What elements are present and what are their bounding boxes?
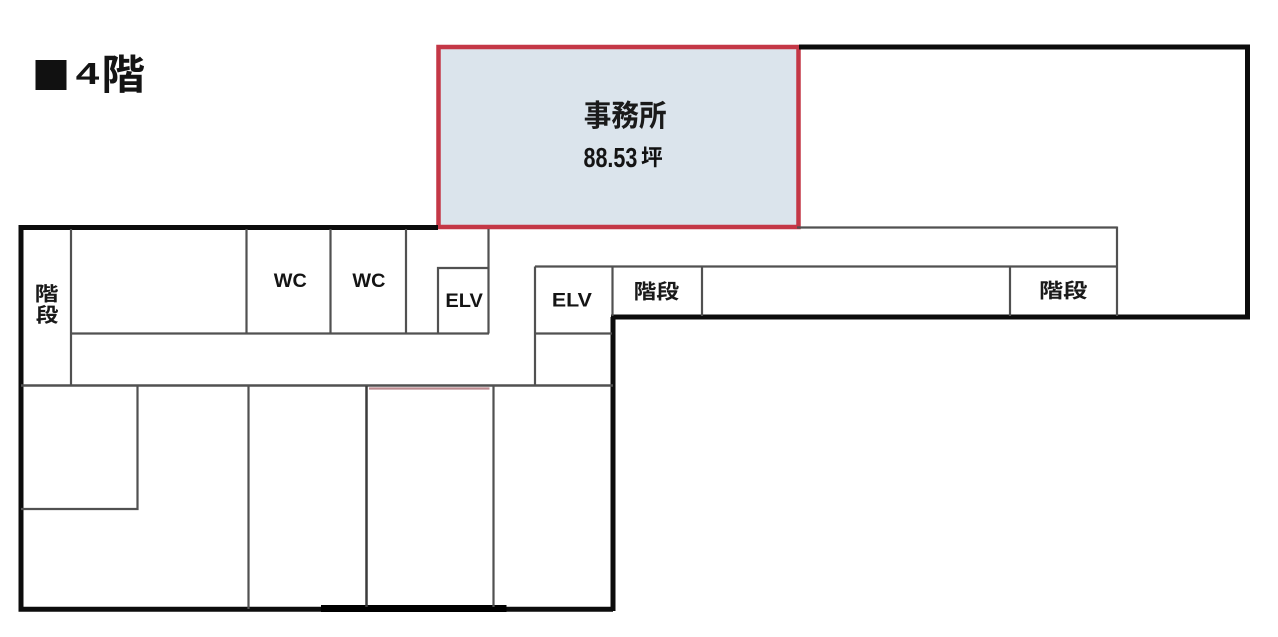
svg-text:4: 4 (76, 57, 100, 91)
svg-text:WC: WC (352, 270, 385, 292)
svg-text:88.53: 88.53 (584, 141, 638, 173)
svg-text:ELV: ELV (445, 290, 483, 312)
svg-text:WC: WC (274, 270, 307, 292)
svg-text:ELV: ELV (552, 289, 593, 311)
